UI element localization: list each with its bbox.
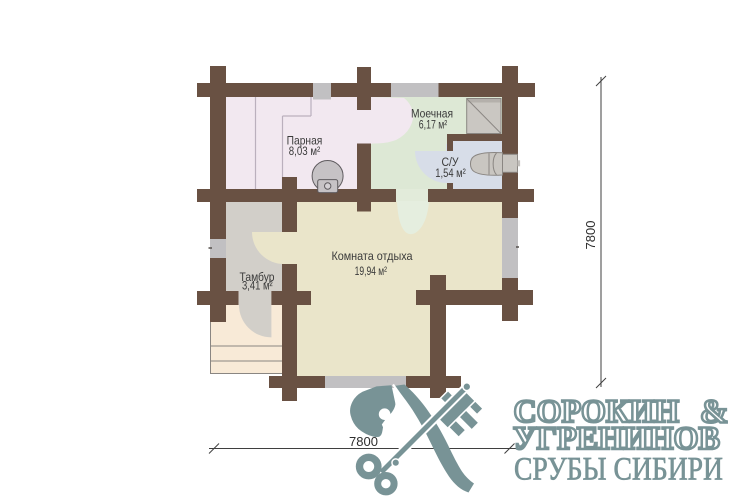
svg-text:7800: 7800 <box>583 221 598 250</box>
svg-text:6,17 м²: 6,17 м² <box>419 117 447 131</box>
svg-text:Комната отдыха: Комната отдыха <box>331 249 412 263</box>
svg-text:19,94 м²: 19,94 м² <box>355 264 387 278</box>
svg-text:3,41 м²: 3,41 м² <box>242 279 273 293</box>
svg-text:СРУБЫ СИБИРИ: СРУБЫ СИБИРИ <box>514 452 723 488</box>
svg-text:8,03 м²: 8,03 м² <box>289 144 320 158</box>
svg-text:1,54 м²: 1,54 м² <box>435 166 466 180</box>
